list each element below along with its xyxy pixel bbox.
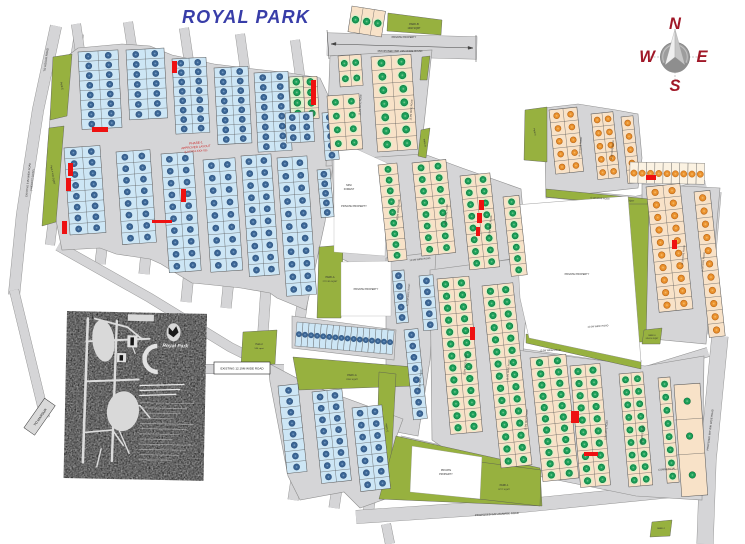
svg-text:EXISTING 12.19M WIDE ROAD: EXISTING 12.19M WIDE ROAD [220, 367, 264, 371]
svg-text:PARK-B: PARK-B [409, 22, 419, 26]
svg-text:Park-d: Park-d [255, 343, 263, 346]
svg-text:N: N [669, 15, 682, 33]
svg-text:PARK-2: PARK-2 [657, 527, 666, 530]
svg-text:PARK-G: PARK-G [347, 374, 356, 377]
svg-text:PRIVATE PROPERTY: PRIVATE PROPERTY [565, 273, 590, 276]
svg-text:PARK-A: PARK-A [325, 276, 334, 279]
svg-text:W: W [639, 48, 656, 66]
svg-text:2772.85 SQMT: 2772.85 SQMT [323, 281, 338, 283]
svg-text:PARK-1: PARK-1 [500, 484, 509, 487]
svg-text:PROPOSED IMP 24M WIDE ROAD: PROPOSED IMP 24M WIDE ROAD [378, 49, 423, 53]
svg-text:2390 SQMT: 2390 SQMT [346, 379, 358, 381]
svg-text:FOREST: FOREST [344, 187, 355, 191]
svg-text:PRIVATE: PRIVATE [441, 469, 452, 472]
svg-text:534 sqmt: 534 sqmt [255, 347, 264, 350]
svg-text:PRIVATE PROPERTY: PRIVATE PROPERTY [354, 288, 379, 291]
svg-text:S: S [669, 77, 680, 95]
svg-text:1002 SQMT: 1002 SQMT [408, 27, 421, 30]
svg-text:2456.56 SQMT: 2456.56 SQMT [646, 338, 660, 340]
svg-text:PRIVATE PROPERTY: PRIVATE PROPERTY [341, 204, 367, 208]
svg-text:MINI: MINI [346, 183, 352, 187]
svg-text:ROYAL PARK: ROYAL PARK [182, 7, 311, 27]
svg-text:E: E [696, 48, 708, 66]
svg-text:Royal Park: Royal Park [162, 343, 188, 350]
svg-text:3727 SQMT: 3727 SQMT [498, 489, 510, 491]
svg-text:PARK-9: PARK-9 [648, 334, 656, 337]
svg-text:PRIVATE PROPERTY: PRIVATE PROPERTY [392, 36, 417, 39]
svg-text:PROPERTY: PROPERTY [439, 473, 453, 476]
